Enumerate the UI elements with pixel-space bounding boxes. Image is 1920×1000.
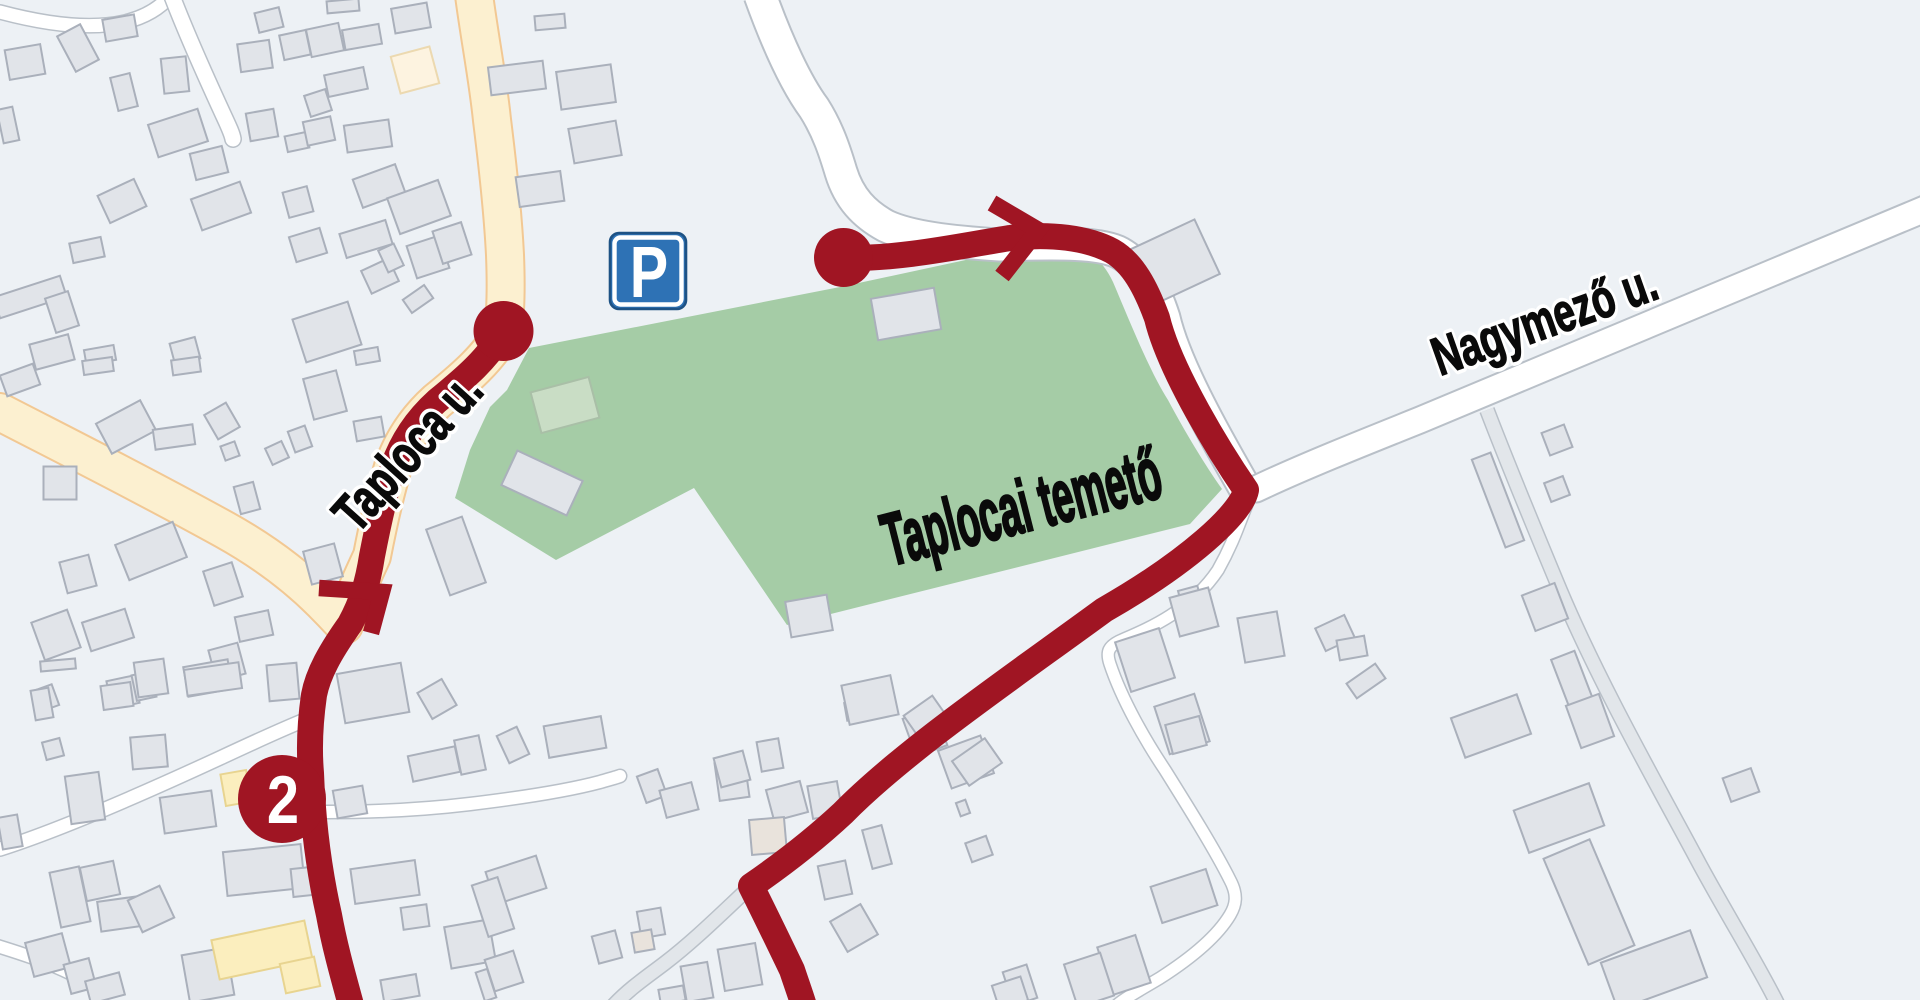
svg-text:2: 2 — [267, 763, 299, 838]
svg-text:P: P — [630, 232, 668, 313]
